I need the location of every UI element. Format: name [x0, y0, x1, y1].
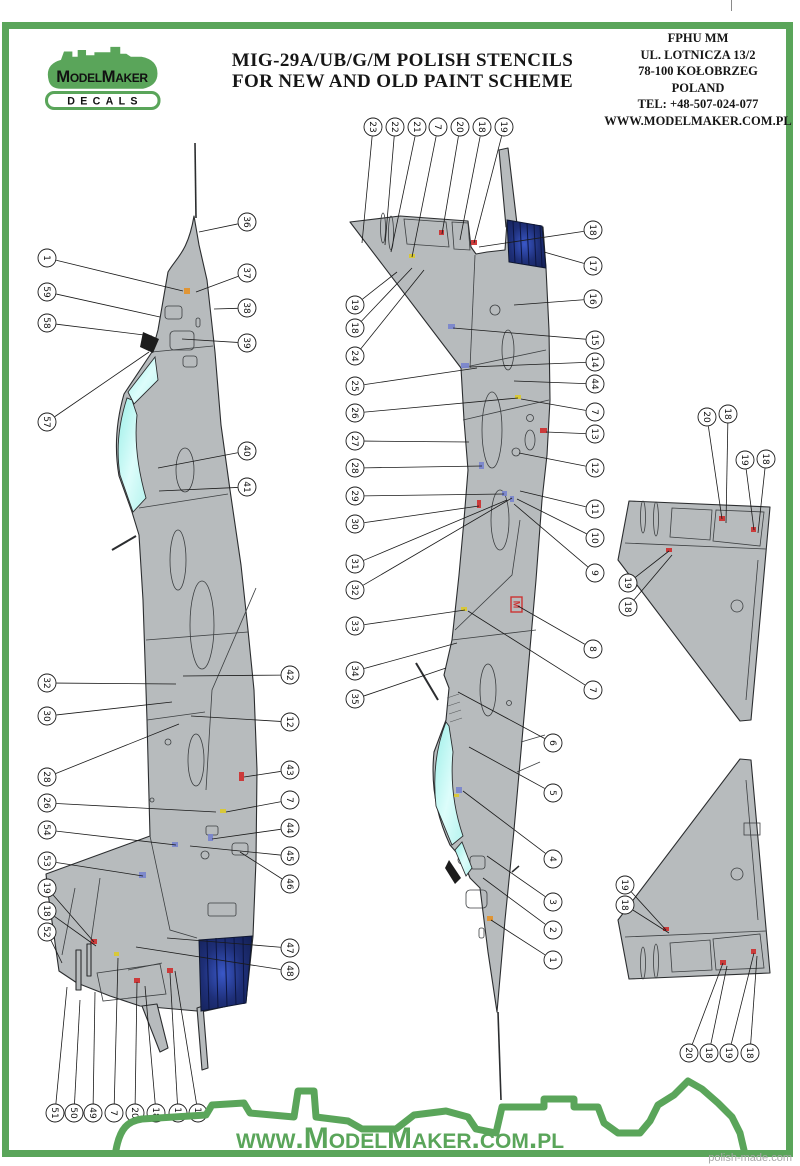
title-line-1: MIG-29A/UB/G/M POLISH STENCILS — [195, 50, 610, 71]
callout-number: 59 — [41, 286, 51, 298]
callout-number: 12 — [284, 716, 294, 727]
address-line: TEL: +48-507-024-077 — [602, 96, 794, 113]
callout-number: 2 — [547, 927, 557, 933]
leader-line — [364, 643, 457, 668]
callout-number: 45 — [284, 850, 294, 861]
callout-number: 17 — [587, 260, 597, 271]
address-line: UL. LOTNICZA 13/2 — [602, 47, 794, 64]
leader-line — [361, 270, 424, 349]
decal-instruction-sheet: ModelMaker DECALS MIG-29A/UB/G/M POLISH … — [0, 0, 800, 1166]
sheet-title: MIG-29A/UB/G/M POLISH STENCILS FOR NEW A… — [195, 50, 610, 92]
trim-mark — [731, 0, 732, 11]
callout-number: 19 — [622, 577, 632, 589]
callout-number: 18 — [349, 322, 359, 334]
footer-url-text: www.ModelMaker.com.pl — [236, 1122, 564, 1155]
leader-line — [56, 294, 160, 317]
callout-number: 20 — [454, 121, 464, 133]
stencil-placement-diagram: M 15958573230282654531918525150497201819… — [0, 0, 800, 1166]
leader-line — [56, 260, 183, 291]
stencil-mark — [454, 794, 459, 797]
callout-number: 15 — [589, 334, 599, 345]
stencil-mark — [477, 500, 481, 508]
callout-number: 19 — [723, 1047, 733, 1059]
callout-number: 43 — [284, 764, 294, 775]
engine-nozzle — [199, 936, 252, 1011]
callout-50: 50 — [65, 1000, 83, 1122]
callout-number: 32 — [41, 677, 51, 688]
stencil-mark — [184, 288, 190, 294]
callout-number: 49 — [87, 1107, 97, 1119]
callout-number: 46 — [284, 878, 294, 890]
dorsal-antenna — [112, 536, 136, 550]
callout-36: 36 — [199, 213, 256, 232]
callout-number: 58 — [41, 317, 51, 329]
stencil-mark — [208, 834, 213, 841]
callout-number: 37 — [241, 267, 251, 278]
manufacturer-address: FPHU MM UL. LOTNICZA 13/2 78-100 KOŁOBRZ… — [602, 30, 794, 129]
callout-number: 20 — [683, 1047, 693, 1059]
leader-line — [362, 272, 397, 299]
callout-number: 41 — [241, 481, 251, 492]
pitot-probe — [498, 1012, 501, 1100]
callout-19: 19 — [346, 272, 397, 314]
callout-number: 30 — [349, 518, 359, 530]
callout-number: 3 — [547, 899, 557, 905]
callout-number: 18 — [760, 453, 770, 465]
callout-number: 47 — [284, 942, 294, 953]
ventral-blade — [87, 944, 91, 976]
callout-number: 50 — [68, 1107, 78, 1119]
callout-number: 53 — [41, 855, 51, 866]
callout-number: 30 — [41, 710, 51, 722]
leader-line — [364, 506, 479, 523]
callout-49: 49 — [84, 992, 102, 1122]
leader-line — [56, 324, 152, 336]
address-line: FPHU MM — [602, 30, 794, 47]
stencil-mark — [751, 949, 756, 954]
center-aircraft-side-view — [350, 148, 550, 1100]
title-line-2: FOR NEW AND OLD PAINT SCHEME — [195, 71, 610, 92]
address-line: WWW.MODELMAKER.COM.PL — [602, 113, 794, 130]
callout-number: 27 — [349, 435, 359, 446]
callout-number: 16 — [587, 293, 597, 305]
callout-28: 28 — [346, 459, 482, 477]
callout-number: 19 — [349, 299, 359, 311]
callout-number: 7 — [432, 124, 442, 130]
stencil-mark — [502, 491, 507, 496]
logo-brand-text: ModelMaker — [56, 67, 148, 86]
callout-33: 33 — [346, 610, 465, 635]
callout-1: 1 — [38, 249, 183, 291]
callout-number: 29 — [349, 490, 359, 502]
modelmaker-logo: ModelMaker DECALS — [26, 34, 178, 110]
callout-number: 26 — [349, 407, 359, 419]
callout-number: 20 — [701, 411, 711, 423]
stencil-mark — [114, 952, 119, 956]
callout-number: 7 — [587, 687, 597, 693]
callout-number: 19 — [739, 454, 749, 466]
callout-number: 32 — [349, 584, 359, 595]
callout-number: 10 — [589, 532, 599, 544]
callout-number: 24 — [349, 350, 359, 362]
callout-13: 13 — [546, 425, 604, 443]
callout-number: 44 — [589, 378, 599, 390]
callout-38: 38 — [214, 299, 256, 317]
callout-number: 8 — [587, 646, 597, 652]
stencil-mark — [479, 462, 484, 469]
leader-line — [364, 466, 482, 468]
aoa-vane — [512, 866, 519, 872]
callout-number: 23 — [367, 121, 377, 132]
callout-number: 51 — [49, 1107, 59, 1118]
callout-20: 20 — [680, 963, 723, 1062]
canopy-frame-dark — [445, 860, 461, 884]
fuselage-outline — [46, 216, 257, 1012]
stencil-mark — [720, 960, 726, 965]
dorsal-antenna — [416, 663, 438, 700]
callout-number: 28 — [41, 771, 51, 783]
callout-number: 13 — [589, 428, 599, 439]
callout-number: 18 — [744, 1047, 754, 1059]
stencil-mark — [456, 787, 462, 793]
callout-number: 26 — [41, 797, 51, 809]
stencil-mark — [439, 230, 444, 235]
callout-number: 42 — [284, 669, 294, 680]
callout-number: 36 — [241, 216, 251, 228]
far-fin-blade — [499, 148, 517, 227]
callout-number: 18 — [41, 905, 51, 917]
stencil-mark — [239, 772, 244, 781]
callout-24: 24 — [346, 270, 424, 365]
callout-number: 18 — [703, 1047, 713, 1059]
callout-number: 38 — [241, 302, 251, 314]
callout-51: 51 — [46, 987, 67, 1122]
tail-fin-inner-view — [618, 759, 770, 979]
leader-line — [214, 308, 238, 309]
callout-number: 19 — [498, 121, 508, 133]
callout-number: 44 — [284, 822, 294, 834]
leader-line — [546, 432, 586, 434]
callout-number: 48 — [284, 965, 294, 977]
callout-number: 19 — [619, 879, 629, 891]
callout-58: 58 — [38, 314, 152, 336]
leader-line — [474, 136, 502, 243]
address-line: 78-100 KOŁOBRZEG — [602, 63, 794, 80]
callout-25: 25 — [346, 368, 477, 395]
callout-number: 1 — [547, 957, 557, 963]
callout-number: 6 — [547, 740, 557, 746]
callout-number: 22 — [389, 121, 399, 132]
leader-line — [199, 224, 238, 232]
stencil-mark — [540, 428, 547, 433]
callout-number: 18 — [622, 601, 632, 613]
callout-number: 19 — [41, 882, 51, 894]
stencil-mark — [220, 809, 226, 813]
callout-number: 31 — [349, 558, 359, 569]
callout-number: 18 — [587, 224, 597, 236]
scan-watermark: polish-made.com — [708, 1152, 792, 1164]
logo-sub-text: DECALS — [67, 96, 143, 108]
stencil-mark — [167, 968, 173, 973]
callout-number: 12 — [589, 462, 599, 473]
vent-slot — [479, 928, 484, 938]
leader-line — [544, 252, 584, 263]
callout-number: 33 — [349, 620, 359, 631]
fuselage-outline — [350, 216, 550, 1012]
engine-nozzle — [507, 220, 546, 268]
callout-27: 27 — [346, 432, 469, 450]
callout-number: 11 — [589, 503, 599, 514]
callout-number: 18 — [722, 408, 732, 420]
left-aircraft-side-view — [46, 143, 257, 1070]
leader-line — [460, 136, 480, 240]
stabilator-edge — [197, 1006, 208, 1070]
leader-line — [711, 966, 727, 1044]
callout-59: 59 — [38, 283, 160, 317]
address-line: POLAND — [602, 80, 794, 97]
leader-line — [364, 441, 469, 442]
leader-line — [75, 1000, 80, 1104]
footer-banner: www.ModelMaker.com.pl — [116, 1081, 744, 1155]
leader-line — [93, 992, 95, 1104]
callout-number: 54 — [41, 824, 51, 836]
leader-line — [364, 610, 465, 625]
pitot-probe — [195, 143, 196, 218]
callout-number: 28 — [349, 462, 359, 474]
callout-number: 14 — [589, 356, 599, 368]
callout-number: 34 — [349, 665, 359, 677]
callout-number: 7 — [589, 409, 599, 415]
callout-number: 40 — [241, 445, 251, 457]
callout-number: 21 — [411, 121, 421, 132]
intake-line — [521, 735, 545, 742]
callout-number: 57 — [41, 416, 51, 427]
callout-number: 25 — [349, 380, 359, 391]
stencil-mark — [461, 363, 469, 368]
callout-number: 39 — [241, 337, 251, 349]
callout-number: 5 — [547, 790, 557, 796]
callout-number: 1 — [41, 255, 51, 261]
callout-number: 9 — [589, 570, 599, 576]
ventral-blade — [76, 950, 81, 990]
tail-fin-outer-view — [618, 501, 770, 721]
callout-number: 18 — [476, 121, 486, 133]
callout-number: 7 — [284, 797, 294, 803]
callout-17: 17 — [544, 252, 602, 275]
callout-number: 7 — [108, 1110, 118, 1116]
tail-fairing — [142, 1004, 168, 1052]
leader-line — [56, 987, 67, 1104]
callout-number: 4 — [547, 856, 557, 862]
stencil-mark — [139, 872, 146, 878]
callout-number: 52 — [41, 926, 51, 937]
leader-line — [364, 368, 477, 385]
callout-34: 34 — [346, 643, 457, 680]
callout-20: 20 — [698, 408, 722, 519]
callout-number: 18 — [619, 899, 629, 911]
callout-number: 35 — [349, 693, 359, 704]
